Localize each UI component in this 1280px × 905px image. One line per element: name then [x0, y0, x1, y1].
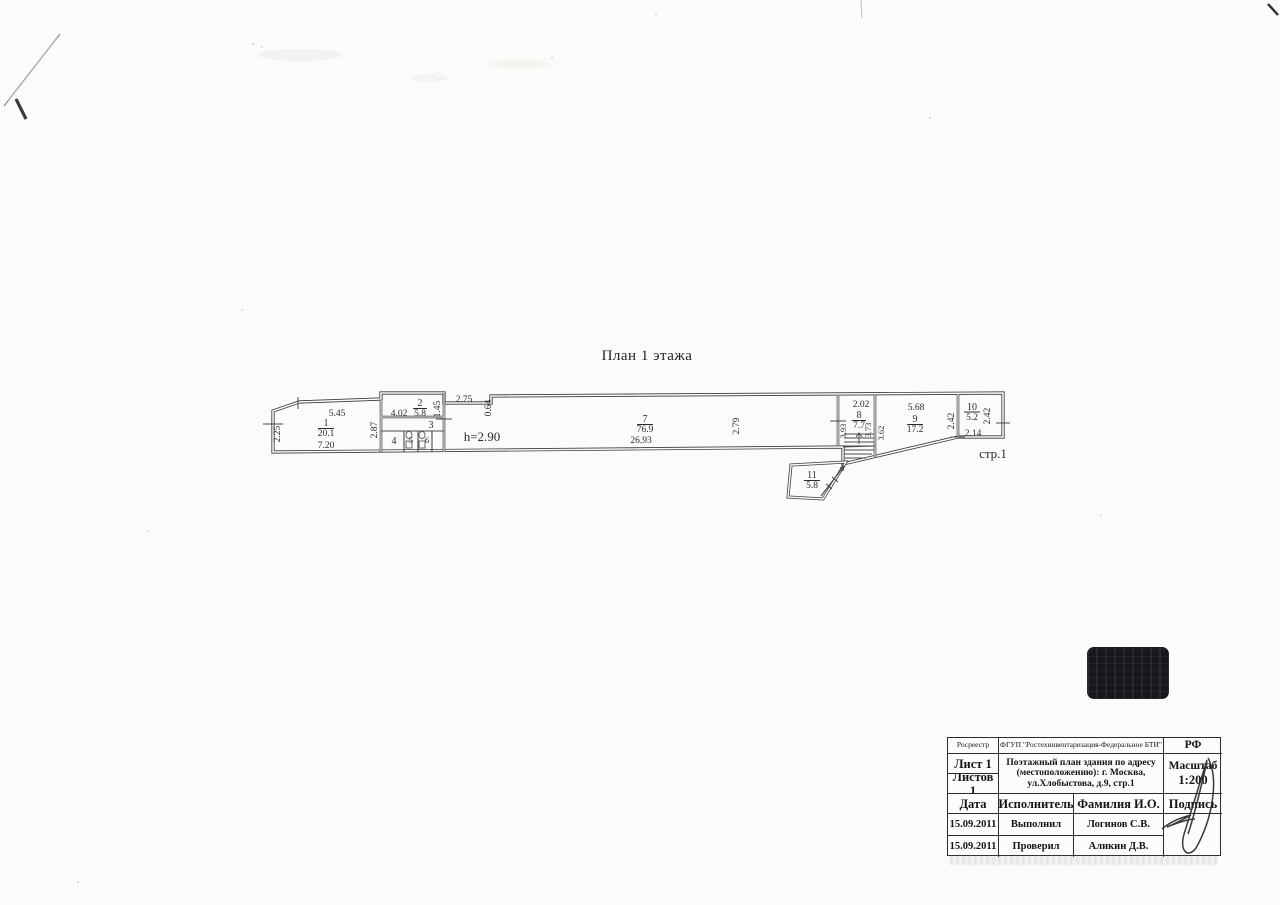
room8-number: 8 — [857, 410, 862, 421]
tb-row2-date: 15.09.2011 — [948, 836, 999, 857]
room6-number: 6 — [425, 435, 429, 445]
tb-col-role: Исполнитель — [999, 794, 1074, 814]
dim-room2-left: 4.02 — [391, 409, 408, 419]
tb-org-left: Росреестр — [948, 738, 999, 754]
dim-room1-top: 5.45 — [329, 409, 346, 419]
room7-number: 7 — [643, 414, 648, 425]
dim-room10-bottom: 2.14 — [965, 429, 982, 439]
room7-area: 76.9 — [637, 425, 654, 435]
dim-room9-right: 2.42 — [947, 412, 957, 429]
room4-number: 4 — [392, 436, 397, 447]
page-title: План 1 этажа — [547, 348, 747, 365]
ink-blob — [16, 99, 26, 119]
dim-room1-right: 2.87 — [370, 421, 380, 438]
dim-room8-left: 3.93 — [838, 424, 848, 439]
tb-doc-line3: ул.Хлобыстова, д.9, стр.1 — [1027, 779, 1134, 790]
room2-area: 5.8 — [414, 409, 426, 419]
room11-area: 5.8 — [806, 481, 818, 491]
scanned-page: 5.45 2.25 1 20.1 7.20 2.87 4.02 2 5.8 1.… — [0, 0, 1280, 905]
smudge — [258, 49, 342, 61]
room3-number: 3 — [429, 420, 434, 431]
dim-room8-right: 3.73 — [863, 423, 873, 438]
scratch-mark-2 — [8, 38, 57, 101]
tb-org-center: ФГУП "Ростехинвентаризация-Федеральное Б… — [999, 738, 1164, 754]
tb-doc-title: Поэтажный план здания по адресу (местопо… — [999, 754, 1164, 794]
room9-area: 17.2 — [907, 425, 924, 435]
tb-doc-line2: (местоположению): г. Москва, — [1017, 768, 1146, 779]
dim-room2-right: 1.45 — [433, 400, 443, 417]
dim-room9-left: 3.62 — [876, 426, 886, 441]
ceiling-height-note: h=2.90 — [464, 429, 501, 444]
dim-room10-right: 2.42 — [983, 407, 993, 424]
tb-row2-role: Проверил — [999, 836, 1074, 857]
room9-number: 9 — [913, 414, 918, 425]
smudge — [490, 59, 550, 69]
building-structure-label: стр.1 — [979, 446, 1007, 461]
room10-number: 10 — [967, 402, 977, 413]
signature-overlay — [1150, 752, 1230, 860]
tb-row1-role: Выполнил — [999, 814, 1074, 836]
room1-area: 20.1 — [318, 429, 335, 439]
dim-room7-mid: 2.79 — [732, 417, 742, 434]
tb-sheets-total: Листов 1 — [948, 774, 999, 794]
room1-number: 1 — [324, 418, 329, 429]
room5-number: 5 — [409, 435, 413, 445]
dim-room8-top: 2.02 — [853, 400, 870, 410]
tb-col-date: Дата — [948, 794, 999, 814]
room10-area: 5.2 — [966, 413, 978, 423]
dim-room1-left: 2.25 — [273, 425, 283, 442]
dim-room1-bottom: 7.20 — [318, 441, 335, 451]
scan-smudge-strip — [950, 856, 1218, 865]
corner-speck — [1268, 4, 1278, 15]
dim-room7-bottom: 26.93 — [630, 436, 652, 446]
tb-sheet: Лист 1 — [948, 754, 999, 774]
dim-room9-top: 5.68 — [908, 403, 925, 413]
tb-row1-date: 15.09.2011 — [948, 814, 999, 836]
plan-labels: 5.45 2.25 1 20.1 7.20 2.87 4.02 2 5.8 1.… — [273, 395, 1007, 491]
top-scratch — [861, 0, 862, 18]
tb-doc-line1: Поэтажный план здания по адресу — [1006, 758, 1155, 769]
stair-flight-line — [821, 466, 844, 496]
signature-strokes — [1162, 758, 1214, 853]
dim-notch-step: 0.64 — [484, 399, 494, 416]
room11-number: 11 — [807, 470, 817, 481]
redacted-stamp — [1087, 647, 1169, 699]
dim-notch-top: 2.75 — [456, 395, 473, 405]
smudge — [412, 74, 448, 82]
room2-number: 2 — [418, 398, 423, 409]
